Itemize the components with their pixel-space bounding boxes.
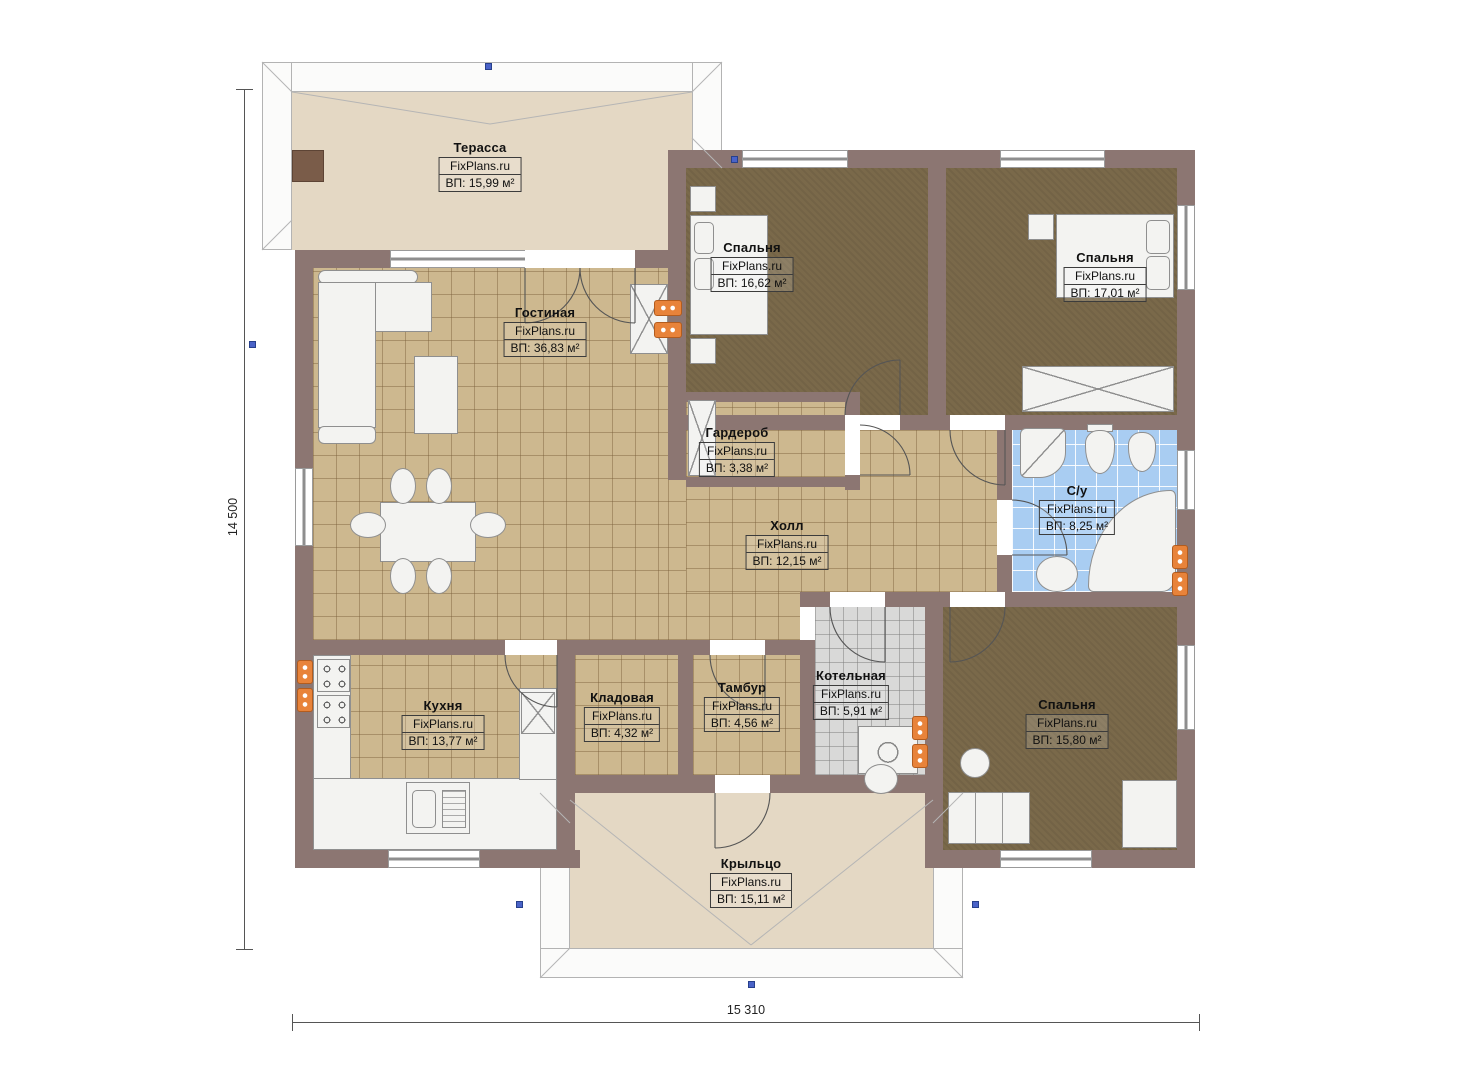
window (1177, 645, 1195, 730)
room-brand: FixPlans.ru (814, 686, 888, 702)
wall-segment (678, 640, 693, 793)
room-brand: FixPlans.ru (747, 536, 828, 552)
pillow-icon (1146, 256, 1170, 290)
room-label-vestibule: Тамбур FixPlans.ru ВП: 4,56 м² (704, 680, 780, 732)
dimension-line-horizontal (292, 1022, 1200, 1023)
floor-plan: Терасса FixPlans.ru ВП: 15,99 м² Гостина… (0, 0, 1474, 1080)
window (388, 850, 480, 868)
room-brand: FixPlans.ru (585, 708, 659, 724)
room-brand: FixPlans.ru (403, 716, 484, 732)
radiator-icon (297, 688, 313, 712)
porch-roof (540, 948, 963, 978)
room-area: ВП: 15,80 м² (1027, 731, 1108, 748)
room-name: Гардероб (699, 425, 775, 440)
room-label-wardrobe: Гардероб FixPlans.ru ВП: 3,38 м² (699, 425, 775, 477)
room-brand: FixPlans.ru (1040, 501, 1114, 517)
room-label-bedroom2: Спальня FixPlans.ru ВП: 17,01 м² (1064, 250, 1147, 302)
room-label-porch: Крыльцо FixPlans.ru ВП: 15,11 м² (710, 856, 792, 908)
room-area: ВП: 4,56 м² (705, 714, 779, 731)
room-label-bedroom1: Спальня FixPlans.ru ВП: 16,62 м² (711, 240, 794, 292)
stove-icon (317, 659, 350, 692)
room-brand: FixPlans.ru (711, 874, 791, 890)
stove-icon (317, 695, 350, 728)
window (295, 468, 313, 546)
terrace-double-door-opening (525, 250, 635, 268)
dresser-icon (948, 792, 1030, 844)
wardrobe-x-icon (1022, 366, 1174, 412)
dimension-label-width: 15 310 (696, 1003, 796, 1017)
room-label-pantry: Кладовая FixPlans.ru ВП: 4,32 м² (584, 690, 660, 742)
chair-icon (390, 468, 416, 504)
living-hall-opening-floor (668, 480, 686, 640)
wall-segment (557, 640, 575, 868)
bedroom3-door-opening (950, 592, 1005, 607)
window (390, 250, 530, 268)
room-area: ВП: 17,01 м² (1065, 284, 1146, 301)
dining-table-icon (380, 502, 476, 562)
room-name: Спальня (1026, 697, 1109, 712)
window (1000, 150, 1105, 168)
chair-icon (350, 512, 386, 538)
window (1177, 450, 1195, 510)
room-name: Терасса (439, 140, 522, 155)
room-label-hall: Холл FixPlans.ru ВП: 12,15 м² (746, 518, 829, 570)
sofa-icon (318, 426, 376, 444)
room-label-bedroom3: Спальня FixPlans.ru ВП: 15,80 м² (1026, 697, 1109, 749)
chair-icon (470, 512, 506, 538)
room-area: ВП: 12,15 м² (747, 552, 828, 569)
radiator-icon (1172, 545, 1188, 569)
terrace-roof (262, 62, 722, 92)
room-name: Гостиная (504, 305, 587, 320)
vestibule-door-opening (710, 640, 765, 655)
room-area: ВП: 15,99 м² (440, 174, 521, 191)
room-name: Кладовая (584, 690, 660, 705)
window (1177, 205, 1195, 290)
coffee-table-icon (414, 356, 458, 434)
room-brand: FixPlans.ru (700, 443, 774, 459)
room-terrace-floor (668, 92, 692, 150)
chimney-icon (292, 150, 324, 182)
dimension-tick (236, 89, 253, 90)
terrace-roof (262, 62, 292, 250)
roof-marker-icon (249, 341, 256, 348)
room-area: ВП: 16,62 м² (712, 274, 793, 291)
room-area: ВП: 5,91 м² (814, 702, 888, 719)
dimension-line-vertical (244, 90, 245, 950)
dimension-tick (236, 949, 253, 950)
boiler-door-opening (830, 592, 885, 607)
chair-icon (426, 468, 452, 504)
roof-marker-icon (731, 156, 738, 163)
nightstand-icon (1028, 214, 1054, 240)
room-brand: FixPlans.ru (705, 698, 779, 714)
wall-segment (686, 477, 860, 487)
room-brand: FixPlans.ru (1065, 268, 1146, 284)
pillow-icon (1146, 220, 1170, 254)
room-label-kitchen: Кухня FixPlans.ru ВП: 13,77 м² (402, 698, 485, 750)
window (1000, 850, 1092, 868)
room-brand: FixPlans.ru (1027, 715, 1108, 731)
nightstand-icon (690, 186, 716, 212)
room-name: Крыльцо (710, 856, 792, 871)
room-name: Тамбур (704, 680, 780, 695)
room-name: Спальня (711, 240, 794, 255)
hall-door-opening (950, 415, 1005, 430)
radiator-icon (912, 716, 928, 740)
room-name: Котельная (813, 668, 889, 683)
washbasin-icon (1036, 556, 1078, 592)
nightstand-icon (690, 338, 716, 364)
radiator-icon (654, 300, 682, 316)
room-label-bathroom: С/у FixPlans.ru ВП: 8,25 м² (1039, 483, 1115, 535)
room-area: ВП: 13,77 м² (403, 732, 484, 749)
radiator-icon (912, 744, 928, 768)
radiator-icon (654, 322, 682, 338)
roof-marker-icon (485, 63, 492, 70)
room-name: Спальня (1064, 250, 1147, 265)
wardrobe-door-opening (845, 425, 860, 475)
dimension-label-height: 14 500 (226, 498, 240, 536)
wardrobe-icon (1122, 780, 1177, 848)
stool-icon (960, 748, 990, 778)
room-name: Холл (746, 518, 829, 533)
porch-door-opening (715, 775, 770, 793)
room-brand: FixPlans.ru (712, 258, 793, 274)
room-label-terrace: Терасса FixPlans.ru ВП: 15,99 м² (439, 140, 522, 192)
kitchen-door-opening (505, 640, 557, 655)
chair-icon (390, 558, 416, 594)
bathroom-door-opening (997, 500, 1012, 555)
roof-marker-icon (972, 901, 979, 908)
room-area: ВП: 8,25 м² (1040, 517, 1114, 534)
room-name: С/у (1039, 483, 1115, 498)
radiator-icon (297, 660, 313, 684)
fireplace-icon (630, 284, 668, 354)
sofa-icon (318, 282, 376, 428)
room-area: ВП: 4,32 м² (585, 724, 659, 741)
radiator-icon (1172, 572, 1188, 596)
roof-marker-icon (748, 981, 755, 988)
window (742, 150, 848, 168)
room-label-boiler: Котельная FixPlans.ru ВП: 5,91 м² (813, 668, 889, 720)
boiler-icon (864, 764, 898, 794)
room-name: Кухня (402, 698, 485, 713)
room-area: ВП: 15,11 м² (711, 890, 791, 907)
room-area: ВП: 36,83 м² (505, 339, 586, 356)
room-brand: FixPlans.ru (440, 158, 521, 174)
wall-segment (575, 640, 693, 655)
kitchen-sink-icon (442, 790, 466, 828)
fridge-icon (521, 692, 555, 734)
wall-segment (928, 168, 946, 415)
dimension-tick (1199, 1014, 1200, 1031)
room-brand: FixPlans.ru (505, 323, 586, 339)
roof-marker-icon (516, 901, 523, 908)
dimension-tick (292, 1014, 293, 1031)
kitchen-sink-icon (412, 790, 436, 828)
room-hall-floor (686, 592, 800, 640)
chair-icon (426, 558, 452, 594)
wall-segment (295, 250, 313, 868)
room-label-living: Гостиная FixPlans.ru ВП: 36,83 м² (504, 305, 587, 357)
room-area: ВП: 3,38 м² (700, 459, 774, 476)
